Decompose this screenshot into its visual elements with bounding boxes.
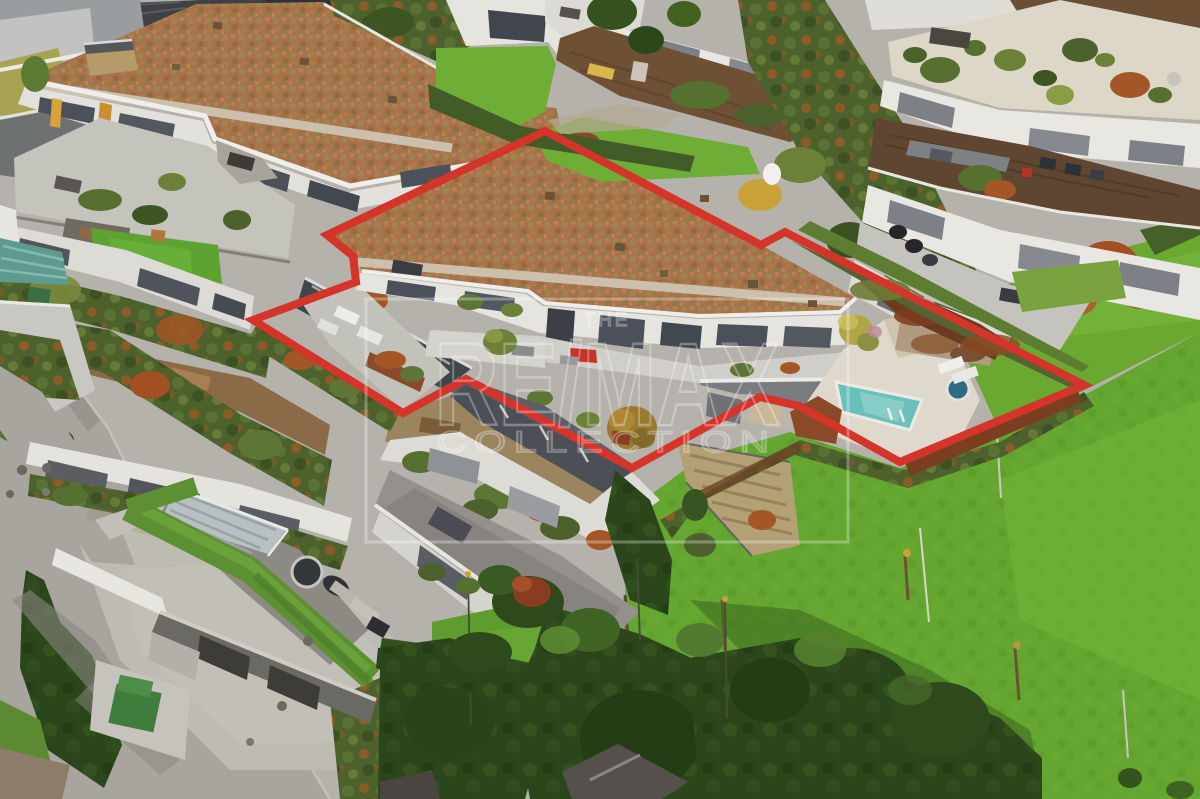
- svg-text:COLLECTION: COLLECTION: [437, 426, 777, 459]
